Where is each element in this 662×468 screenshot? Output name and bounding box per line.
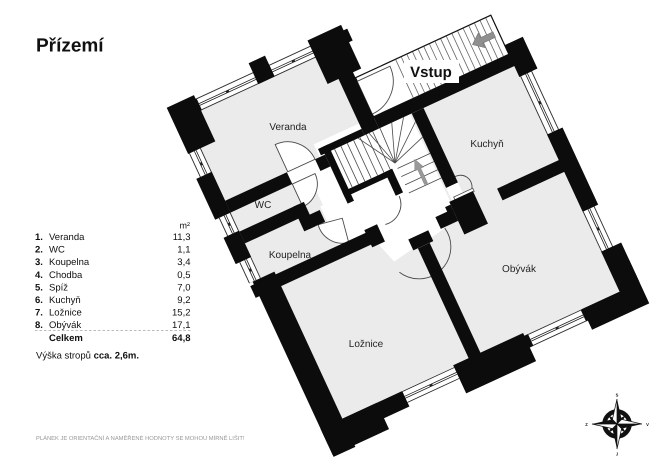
svg-text:Celkem: Celkem: [49, 333, 83, 344]
svg-text:Výška stropů cca. 2,6m.: Výška stropů cca. 2,6m.: [36, 351, 139, 362]
svg-text:7,0: 7,0: [177, 283, 190, 294]
svg-text:3,4: 3,4: [177, 257, 190, 268]
svg-text:Obývák: Obývák: [502, 264, 537, 275]
svg-text:Chodba: Chodba: [49, 270, 83, 281]
svg-text:11,3: 11,3: [173, 232, 191, 243]
svg-text:m²: m²: [180, 221, 191, 231]
svg-text:2.: 2.: [35, 245, 43, 256]
svg-text:1.: 1.: [35, 232, 43, 243]
svg-text:15,2: 15,2: [172, 308, 191, 319]
svg-text:Ložnice: Ložnice: [49, 308, 82, 319]
svg-text:Z: Z: [585, 422, 588, 427]
svg-text:17,1: 17,1: [172, 320, 191, 331]
svg-text:V: V: [646, 422, 649, 427]
svg-text:Spíž: Spíž: [49, 283, 68, 294]
svg-text:Veranda: Veranda: [49, 232, 85, 243]
svg-text:5.: 5.: [35, 283, 43, 294]
svg-text:Veranda: Veranda: [269, 122, 307, 133]
svg-text:9,2: 9,2: [177, 295, 190, 306]
svg-text:1,1: 1,1: [177, 245, 190, 256]
svg-text:4.: 4.: [35, 270, 43, 281]
svg-text:Ložnice: Ložnice: [349, 339, 384, 350]
svg-text:8.: 8.: [35, 320, 43, 331]
svg-text:6.: 6.: [35, 295, 43, 306]
svg-text:3.: 3.: [35, 257, 43, 268]
svg-text:0,5: 0,5: [177, 270, 190, 281]
svg-text:S: S: [616, 393, 619, 398]
svg-text:Koupelna: Koupelna: [269, 250, 312, 261]
svg-text:WC: WC: [255, 200, 272, 211]
svg-text:Kuchyň: Kuchyň: [470, 139, 503, 150]
svg-text:PLÁNEK JE ORIENTAČNÍ A NAMĚŘEN: PLÁNEK JE ORIENTAČNÍ A NAMĚŘENÉ HODNOTY …: [36, 434, 245, 442]
svg-text:Koupelna: Koupelna: [49, 257, 90, 268]
svg-text:7.: 7.: [35, 308, 43, 319]
svg-text:Kuchyň: Kuchyň: [49, 295, 81, 306]
svg-text:J: J: [616, 452, 619, 457]
svg-text:64,8: 64,8: [172, 333, 191, 344]
svg-text:WC: WC: [49, 245, 65, 256]
svg-text:Přízemí: Přízemí: [36, 36, 104, 57]
svg-text:Vstup: Vstup: [410, 64, 452, 81]
svg-text:Obývák: Obývák: [49, 320, 81, 331]
